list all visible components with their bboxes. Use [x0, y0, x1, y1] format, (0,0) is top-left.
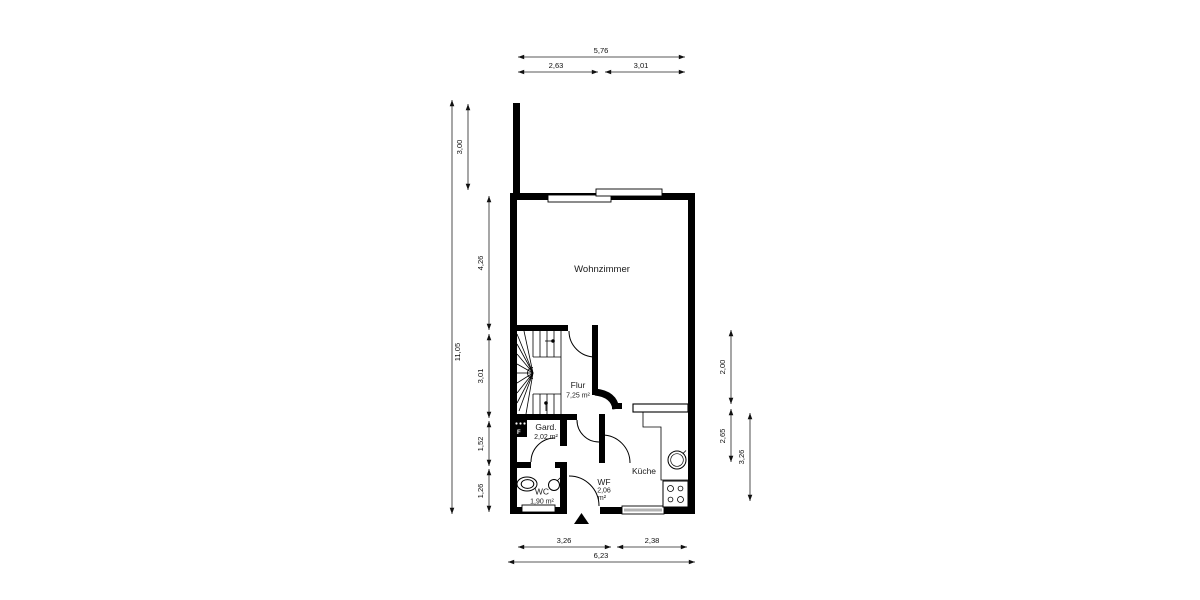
- stair-direction-dot: [544, 401, 548, 405]
- wall-gard-wc-left: [517, 462, 531, 468]
- dim-right-middle: 2,65: [718, 429, 727, 444]
- room-area-flur: 7,25 m²: [566, 393, 590, 400]
- chimney-icon: F: [513, 420, 527, 437]
- door-arc-entrance: [569, 476, 599, 506]
- dim-top-left: 2,63: [549, 61, 564, 70]
- dim-bottom-total: 6,23: [594, 551, 609, 560]
- staircase: [517, 331, 561, 414]
- room-label-flur: Flur: [571, 380, 586, 390]
- wall-flur-bottom: [517, 414, 577, 420]
- room-area-wf-unit: m²: [598, 495, 607, 502]
- window-wc: [522, 505, 555, 512]
- dim-left-middle: 3,01: [476, 369, 485, 384]
- room-label-gard: Gard.: [535, 422, 556, 432]
- dim-bottom-right: 2,38: [645, 536, 660, 545]
- wc-sink-icon: [549, 478, 561, 491]
- dim-bottom-left: 3,26: [557, 536, 572, 545]
- window-kitchen-glass: [624, 509, 662, 512]
- dim-right-upper: 2,00: [718, 360, 727, 375]
- wall-gard-right: [560, 414, 567, 446]
- room-label-wohnzimmer: Wohnzimmer: [574, 264, 630, 275]
- wall-stair-top: [517, 325, 568, 331]
- door-arc-wc: [531, 438, 555, 462]
- room-area-wf-value: 2,06: [597, 488, 611, 495]
- floor-plan-page: F Wohnzi: [0, 0, 1200, 600]
- wall-wf-kueche: [599, 414, 605, 463]
- wall-gard-wc-right: [555, 462, 567, 468]
- exterior-wall-left: [510, 193, 517, 514]
- dim-left-bottom: 1,26: [476, 484, 485, 499]
- kitchen-sink-icon: [668, 451, 686, 470]
- room-area-gard: 2,02 m²: [534, 434, 558, 441]
- dim-left-total: 11,05: [453, 343, 462, 361]
- dim-left-lower: 1,52: [476, 437, 485, 452]
- dim-top-total: 5,76: [594, 46, 609, 55]
- door-arc-kueche: [602, 435, 630, 463]
- door-arc-wohnzimmer: [569, 331, 595, 357]
- dim-right-outer: 3,26: [737, 450, 746, 465]
- windows-top: [548, 189, 662, 202]
- entrance-opening: [567, 507, 600, 515]
- dim-left-upper: 4,26: [476, 256, 485, 271]
- door-arc-wf: [577, 420, 599, 442]
- stair-direction-dot: [551, 339, 555, 343]
- floor-plan-canvas: F Wohnzi: [0, 0, 1200, 600]
- wall-wc-wf: [560, 462, 567, 514]
- room-area-wc: 1,90 m²: [530, 499, 554, 506]
- stove-icon: [663, 481, 688, 507]
- window-top-right: [596, 189, 662, 196]
- wall-stub-kitchen: [612, 403, 622, 409]
- room-label-wf: WF: [597, 477, 610, 487]
- exterior-wall-right: [688, 193, 695, 514]
- entrance-arrow-icon: [574, 513, 589, 524]
- room-label-kueche: Küche: [632, 466, 656, 476]
- bottom-wall-features: [522, 505, 664, 524]
- chimney-label: F: [517, 430, 521, 436]
- chimney-stub-wall: [513, 103, 520, 195]
- room-label-wc: WC: [535, 487, 549, 497]
- dim-left-stub: 3,00: [455, 140, 464, 155]
- wall-flur-wohnzimmer: [592, 325, 598, 395]
- dim-top-right: 3,01: [634, 61, 649, 70]
